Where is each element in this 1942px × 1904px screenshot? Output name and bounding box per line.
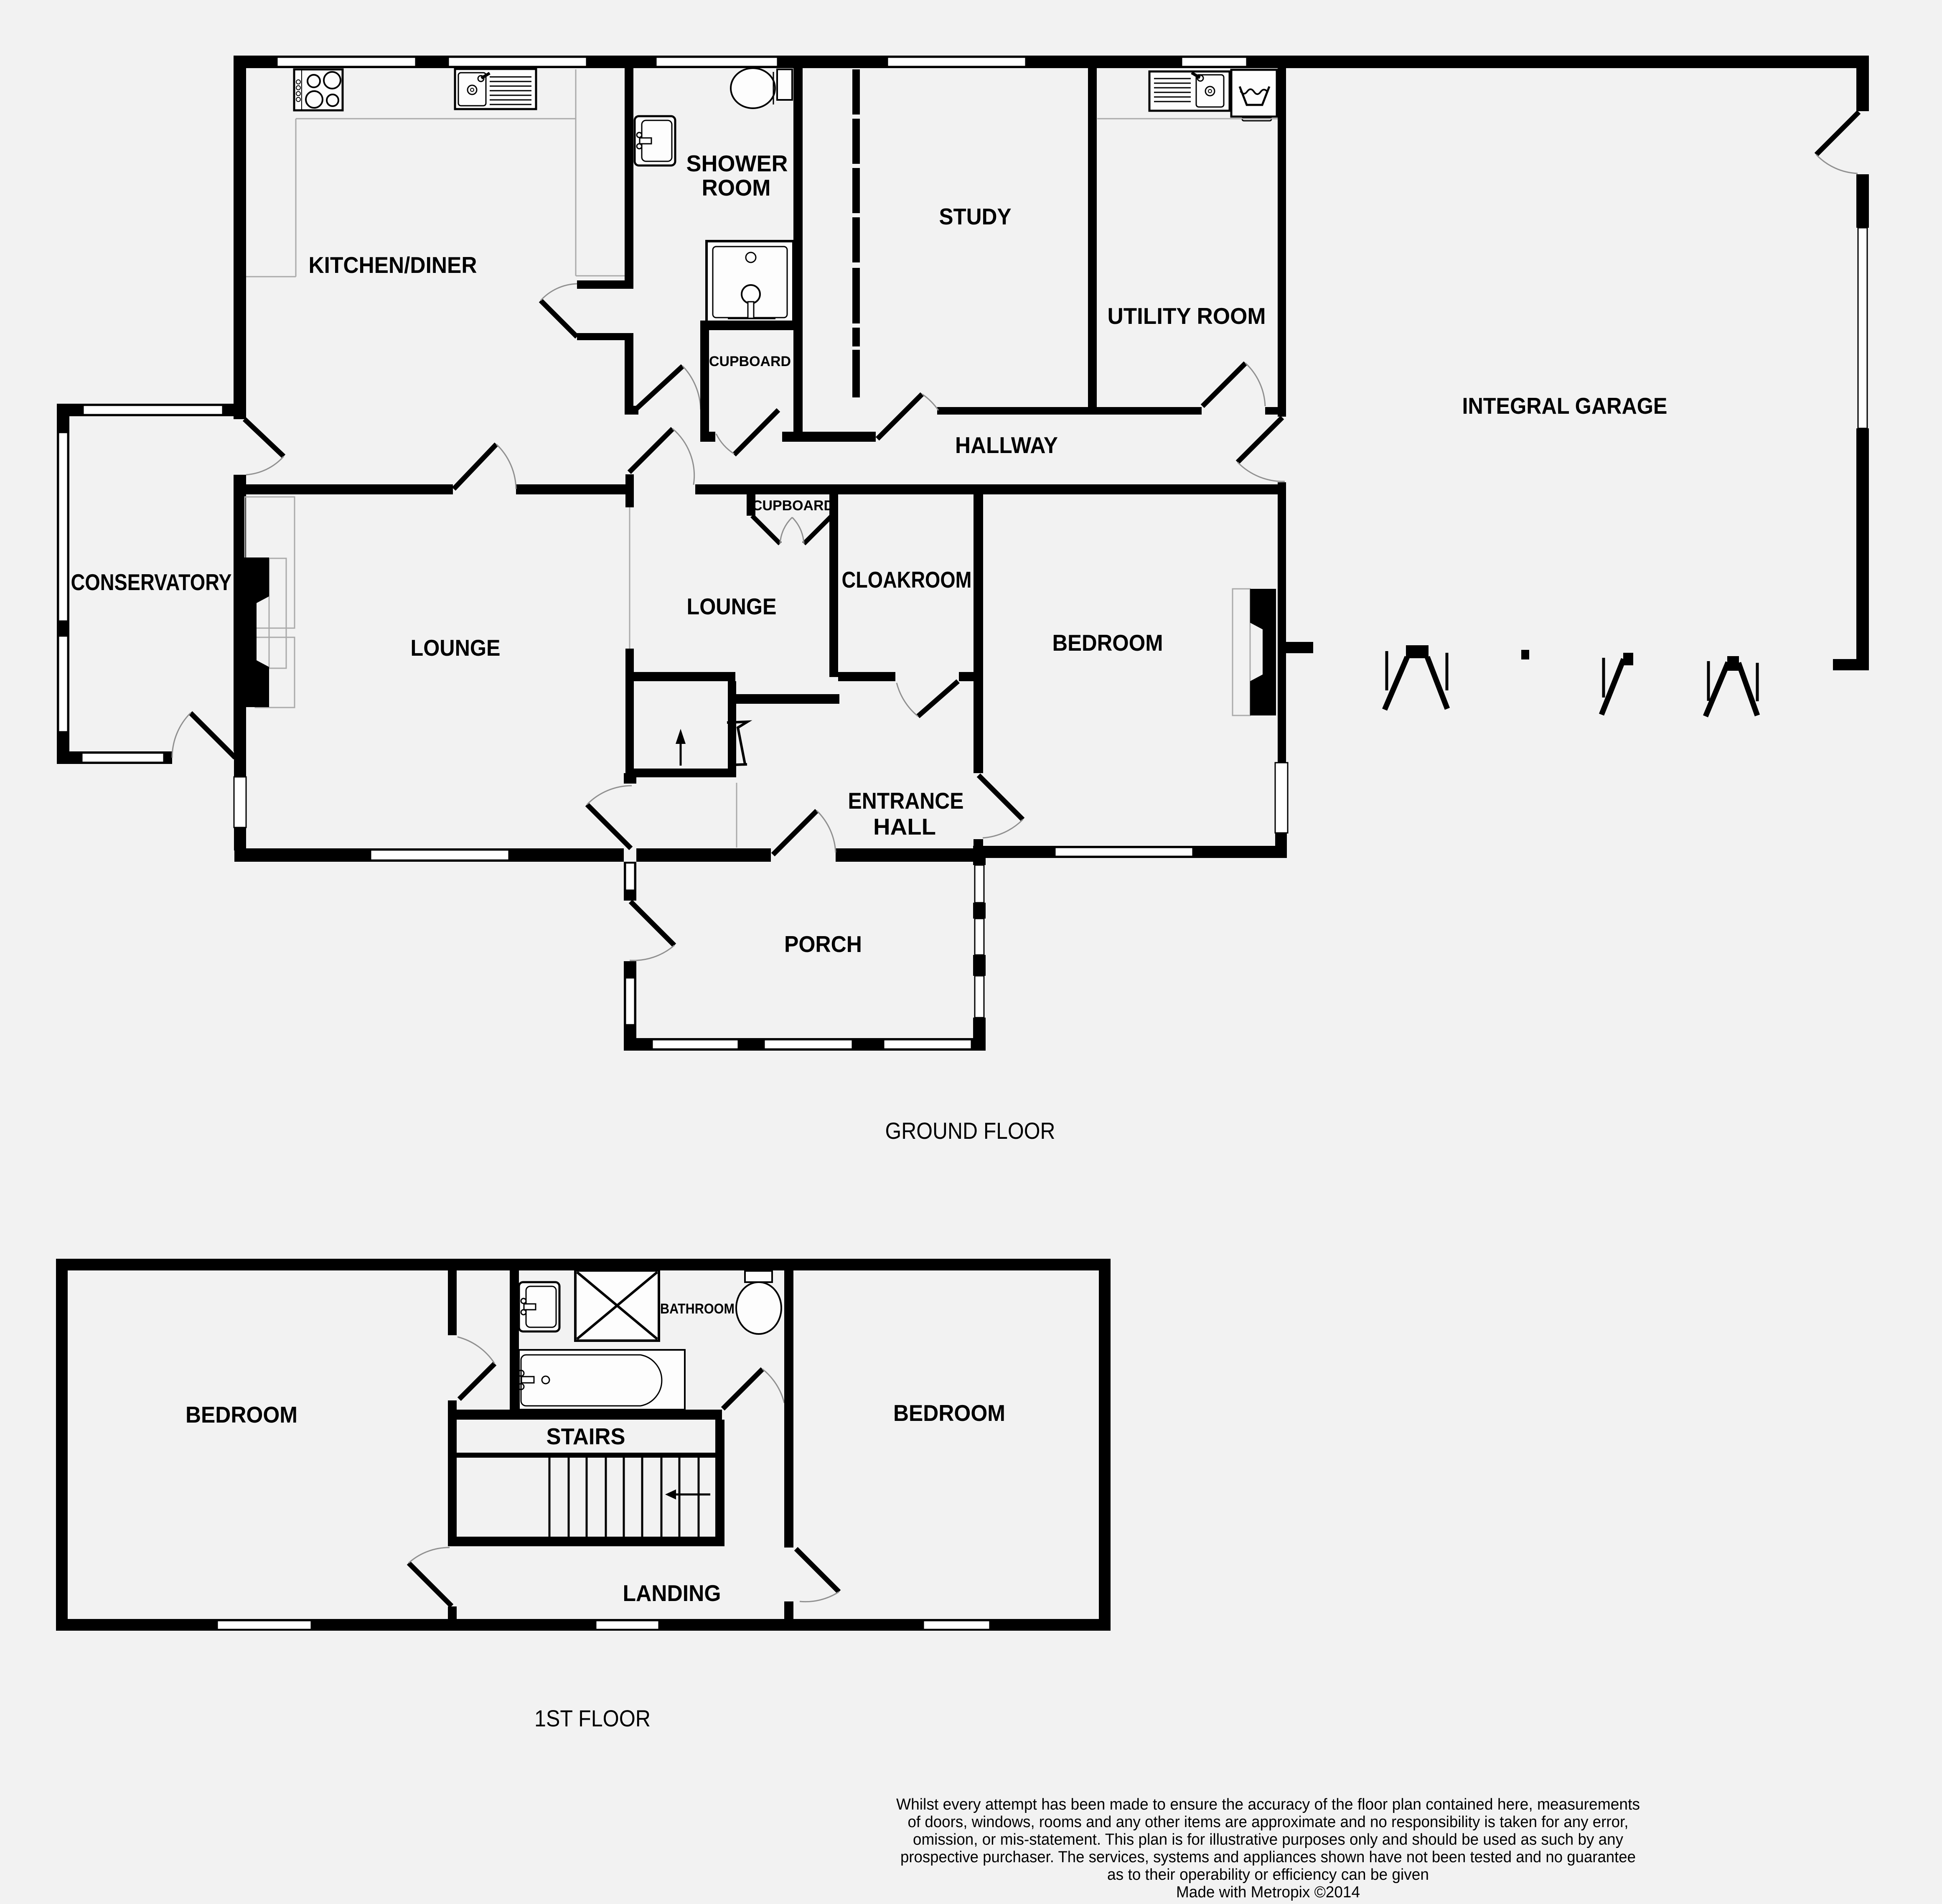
svg-text:LOUNGE: LOUNGE	[687, 593, 777, 619]
svg-text:KITCHEN/DINER: KITCHEN/DINER	[309, 252, 477, 278]
svg-text:Whilst every attempt has been: Whilst every attempt has been made to en…	[896, 1796, 1640, 1813]
svg-text:as to their operability or eff: as to their operability or efficiency ca…	[1107, 1866, 1429, 1884]
svg-text:BATHROOM: BATHROOM	[660, 1301, 735, 1317]
svg-text:CONSERVATORY: CONSERVATORY	[71, 569, 232, 595]
svg-text:CUPBOARD: CUPBOARD	[709, 354, 791, 369]
svg-text:STUDY: STUDY	[939, 204, 1012, 229]
svg-text:ENTRANCE: ENTRANCE	[848, 788, 964, 814]
svg-text:PORCH: PORCH	[784, 931, 862, 957]
svg-text:CLOAKROOM: CLOAKROOM	[842, 567, 972, 593]
svg-text:LOUNGE: LOUNGE	[411, 635, 501, 661]
svg-text:BEDROOM: BEDROOM	[893, 1400, 1005, 1426]
svg-text:HALL: HALL	[873, 814, 936, 840]
svg-text:ROOM: ROOM	[702, 175, 771, 201]
svg-text:STAIRS: STAIRS	[547, 1423, 625, 1449]
svg-text:GROUND FLOOR: GROUND FLOOR	[885, 1117, 1055, 1144]
svg-text:INTEGRAL GARAGE: INTEGRAL GARAGE	[1462, 393, 1667, 419]
svg-text:of doors, windows, rooms and a: of doors, windows, rooms and any other i…	[908, 1813, 1629, 1831]
svg-text:LANDING: LANDING	[623, 1580, 721, 1606]
svg-text:HALLWAY: HALLWAY	[955, 432, 1058, 458]
svg-text:UTILITY ROOM: UTILITY ROOM	[1108, 303, 1266, 329]
svg-text:CUPBOARD: CUPBOARD	[752, 498, 834, 514]
svg-text:SHOWER: SHOWER	[686, 150, 788, 176]
svg-text:1ST FLOOR: 1ST FLOOR	[534, 1705, 651, 1731]
svg-text:BEDROOM: BEDROOM	[1052, 630, 1163, 656]
svg-text:prospective purchaser. The ser: prospective purchaser. The services, sys…	[900, 1848, 1636, 1866]
svg-text:omission, or mis-statement. Th: omission, or mis-statement. This plan is…	[913, 1831, 1623, 1848]
svg-text:BEDROOM: BEDROOM	[186, 1402, 297, 1428]
svg-text:Made with Metropix ©2014: Made with Metropix ©2014	[1176, 1884, 1360, 1901]
